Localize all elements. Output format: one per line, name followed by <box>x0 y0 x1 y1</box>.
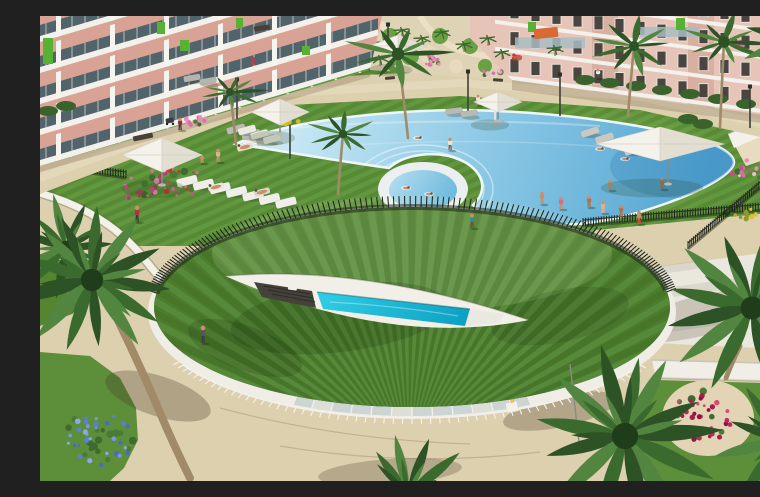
person-leg <box>451 145 452 150</box>
resort-aerial-render <box>40 16 760 481</box>
swimmer-head <box>626 157 629 160</box>
flower-dot <box>77 444 80 447</box>
palm-crown <box>81 269 103 291</box>
flower-dot <box>677 400 680 403</box>
flower-dot <box>86 424 90 428</box>
flower-dot <box>717 435 722 440</box>
person-shadow <box>588 207 596 210</box>
parasol-base <box>494 119 502 122</box>
parasol-base <box>664 182 672 185</box>
person-shadow <box>449 150 457 153</box>
vertical-garden <box>43 38 53 64</box>
flower-dot <box>482 69 485 72</box>
person-leg <box>562 204 563 209</box>
leaf-dot <box>95 436 102 443</box>
hedge <box>575 75 595 85</box>
flower-dot <box>427 55 430 58</box>
balcony-person <box>251 57 255 65</box>
person-leg <box>473 222 474 228</box>
flower-dot <box>710 404 715 409</box>
balcony-fin <box>164 101 169 129</box>
person-head <box>609 180 612 183</box>
person-leg <box>138 215 139 222</box>
balcony-fin <box>56 133 61 161</box>
person-head <box>587 196 590 199</box>
window <box>678 54 687 68</box>
flower-dot <box>516 55 520 59</box>
person-leg <box>543 199 544 204</box>
balcony-fin <box>164 70 169 98</box>
person-leg <box>597 74 598 78</box>
flower-dot <box>73 444 76 447</box>
person-leg <box>599 74 600 78</box>
leaf-dot <box>126 446 131 451</box>
parasol-shadow <box>601 179 703 198</box>
person-head <box>255 189 258 192</box>
person-shadow <box>201 163 209 166</box>
window <box>699 84 708 98</box>
vertical-garden <box>157 22 165 34</box>
person-leg <box>560 204 561 209</box>
hedge <box>652 85 672 95</box>
flower-dot <box>707 408 711 412</box>
flower-dot <box>118 454 122 458</box>
parasol-shadow <box>249 131 295 145</box>
fence-picket <box>426 196 427 207</box>
person-leg <box>638 218 639 224</box>
window <box>510 59 519 73</box>
balcony-fin <box>326 53 331 81</box>
flower-dot <box>697 414 702 419</box>
person-shadow <box>597 78 605 81</box>
window <box>510 16 519 19</box>
hedge <box>56 101 76 111</box>
person-leg <box>602 208 603 213</box>
stroller-wheel <box>166 123 168 125</box>
flower-dot <box>78 454 82 458</box>
balcony-fin <box>56 40 61 68</box>
person-leg <box>622 212 623 217</box>
stroller-wheel <box>172 123 174 125</box>
window <box>531 62 540 76</box>
balcony-glass <box>515 37 585 48</box>
balcony-fin <box>272 69 277 97</box>
person-shadow <box>560 209 568 212</box>
flower-dot <box>84 437 89 442</box>
leaf-dot <box>105 457 110 462</box>
palm-crown <box>612 423 638 449</box>
person-leg <box>219 156 220 162</box>
balcony-fin <box>218 54 223 82</box>
person-leg <box>203 159 204 163</box>
flower-dot <box>703 404 706 407</box>
person-head <box>238 144 241 147</box>
palm-crown <box>392 48 404 60</box>
flower-dot <box>105 452 108 455</box>
person-leg <box>588 202 589 207</box>
leaf-dot <box>117 430 123 436</box>
balcony-fin <box>56 71 61 99</box>
flower-dot <box>75 418 81 424</box>
person-leg <box>541 199 542 204</box>
parasol-base <box>158 183 166 186</box>
vertical-garden <box>302 46 310 55</box>
flower-dot <box>708 435 712 439</box>
person-shadow <box>471 228 479 231</box>
leaf-dot <box>709 414 715 420</box>
flower-dot <box>497 68 501 72</box>
vertical-garden <box>236 18 243 28</box>
swimmer-head <box>601 147 604 150</box>
leaf-dot <box>90 442 98 450</box>
palm-crown <box>226 88 234 96</box>
garden-lawn-patch <box>432 28 448 44</box>
swimmer-head <box>430 192 433 195</box>
person-leg <box>620 212 621 217</box>
palm-crown <box>339 130 348 139</box>
flower-dot <box>105 421 110 426</box>
palm-crown <box>718 36 730 48</box>
balcony-fin <box>326 22 331 50</box>
swimmer-head <box>407 186 410 189</box>
person-head <box>637 211 641 215</box>
flower-dot <box>689 399 693 403</box>
flower-dot <box>125 424 129 428</box>
balcony-fin <box>110 55 115 83</box>
person-head <box>209 184 212 187</box>
window <box>699 57 708 71</box>
flower-dot <box>83 430 88 435</box>
balcony-fin <box>110 86 115 114</box>
person-leg <box>604 208 605 213</box>
flower-dot <box>726 409 730 413</box>
flower-dot <box>430 62 433 65</box>
window <box>741 16 750 22</box>
flower-dot <box>714 400 719 405</box>
person-head <box>619 205 622 208</box>
window <box>594 16 603 30</box>
person-head <box>559 197 562 200</box>
hedge <box>680 89 700 99</box>
balcony-fin <box>272 38 277 66</box>
flower-dot <box>436 58 440 62</box>
flower-dot <box>124 446 127 449</box>
person-shadow <box>602 213 610 216</box>
person-head <box>178 118 181 121</box>
person-shadow <box>541 204 549 207</box>
flower-dot <box>77 427 82 432</box>
vertical-garden <box>180 40 189 51</box>
flower-dot <box>692 412 696 416</box>
flower-dot <box>121 421 125 425</box>
flower-dot <box>68 434 72 438</box>
balcony-fin <box>272 16 277 36</box>
window <box>699 16 708 17</box>
flower-dot <box>87 458 92 463</box>
person-shadow <box>136 222 144 225</box>
leaf-dot <box>82 452 87 457</box>
flower-dot <box>728 422 733 427</box>
leaf-dot <box>129 437 137 445</box>
flower-dot <box>99 463 104 468</box>
flower-dot <box>83 420 88 425</box>
parasol-shadow <box>122 180 186 199</box>
balcony-fin <box>164 39 169 67</box>
person-head <box>448 138 451 141</box>
person-head <box>597 69 600 72</box>
lamp-head <box>558 73 562 77</box>
leaf-dot <box>100 428 105 433</box>
person-leg <box>449 145 450 150</box>
leaf-dot <box>65 424 72 431</box>
person-leg <box>179 125 180 130</box>
flower-dot <box>437 62 440 65</box>
parasol-base <box>276 132 284 135</box>
flower-dot <box>95 427 97 429</box>
hedge <box>736 99 756 109</box>
flower-dot <box>118 441 122 445</box>
flower-dot <box>112 415 115 418</box>
person-head <box>135 206 139 210</box>
person-shadow <box>217 162 225 165</box>
balcony-fin <box>110 24 115 52</box>
flower-dot <box>93 422 98 427</box>
flower-dot <box>89 437 92 440</box>
fence-picket <box>432 196 433 207</box>
person-head <box>470 214 474 218</box>
flower-dot <box>699 396 703 400</box>
parasol-shadow <box>471 120 509 131</box>
flower-dot <box>95 417 98 420</box>
person-shadow <box>202 343 210 346</box>
person-shadow <box>179 130 187 133</box>
person-leg <box>590 202 591 207</box>
garden-sand-circle <box>449 59 463 73</box>
render-canvas <box>40 16 760 481</box>
person-head <box>477 95 480 98</box>
person-leg <box>217 156 218 162</box>
balcony-fin <box>110 117 115 145</box>
person-head <box>601 201 604 204</box>
lamp-head <box>466 70 470 74</box>
person-shadow <box>638 224 646 227</box>
flower-dot <box>111 436 116 441</box>
window <box>720 16 729 19</box>
person-leg <box>640 218 641 224</box>
flower-dot <box>485 71 490 76</box>
balcony-fin <box>218 23 223 51</box>
flower-dot <box>67 442 70 445</box>
person-head <box>216 149 220 153</box>
person-leg <box>471 222 472 228</box>
palm-crown <box>629 41 639 51</box>
window <box>531 16 540 22</box>
window <box>741 62 750 76</box>
person-head <box>201 326 206 331</box>
person-leg <box>202 335 203 343</box>
window <box>573 16 582 27</box>
flower-dot <box>492 72 495 75</box>
lamp-head <box>748 85 752 89</box>
flower-dot <box>126 451 130 455</box>
flower-dot <box>725 418 730 423</box>
lamp-head <box>386 23 390 27</box>
vertical-garden <box>676 18 685 30</box>
flower-dot <box>513 56 516 59</box>
hedge <box>708 94 728 104</box>
person-shadow <box>620 217 628 220</box>
window <box>552 16 561 24</box>
person-head <box>540 192 543 195</box>
swimmer-head <box>419 136 422 139</box>
flower-dot <box>84 416 87 419</box>
person-leg <box>181 125 182 130</box>
person-leg <box>204 335 205 343</box>
flower-dot <box>425 63 427 65</box>
balcony-fin <box>56 16 61 37</box>
hedge <box>693 119 713 129</box>
person-leg <box>201 159 202 163</box>
fence-picket <box>393 196 394 207</box>
